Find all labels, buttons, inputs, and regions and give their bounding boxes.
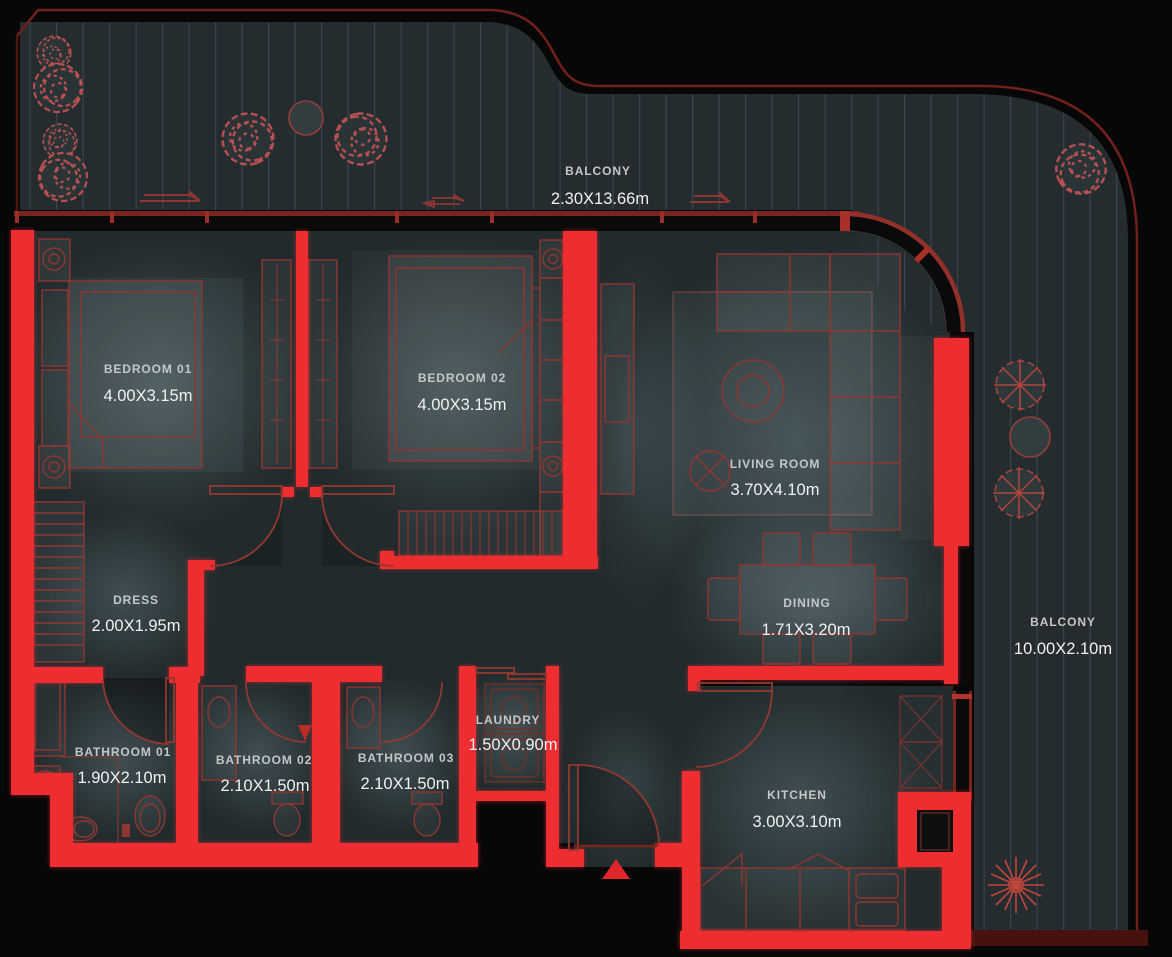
svg-text:BATHROOM 01: BATHROOM 01 bbox=[75, 745, 171, 759]
svg-text:DINING: DINING bbox=[783, 596, 830, 610]
svg-text:4.00X3.15m: 4.00X3.15m bbox=[104, 387, 193, 405]
svg-text:BEDROOM 01: BEDROOM 01 bbox=[104, 362, 192, 376]
svg-text:BEDROOM 02: BEDROOM 02 bbox=[418, 371, 506, 385]
svg-text:2.10X1.50m: 2.10X1.50m bbox=[361, 775, 450, 793]
svg-text:3.70X4.10m: 3.70X4.10m bbox=[731, 481, 820, 499]
svg-text:1.90X2.10m: 1.90X2.10m bbox=[78, 769, 167, 787]
svg-text:DRESS: DRESS bbox=[113, 593, 159, 607]
svg-text:BALCONY: BALCONY bbox=[565, 164, 631, 178]
svg-text:2.00X1.95m: 2.00X1.95m bbox=[92, 617, 181, 635]
svg-text:KITCHEN: KITCHEN bbox=[767, 788, 827, 802]
svg-text:BALCONY: BALCONY bbox=[1030, 615, 1096, 629]
svg-text:LAUNDRY: LAUNDRY bbox=[476, 713, 541, 727]
svg-text:2.10X1.50m: 2.10X1.50m bbox=[221, 777, 310, 795]
svg-text:3.00X3.10m: 3.00X3.10m bbox=[753, 813, 842, 831]
svg-text:1.71X3.20m: 1.71X3.20m bbox=[762, 621, 851, 639]
svg-text:BATHROOM 02: BATHROOM 02 bbox=[216, 753, 312, 767]
svg-text:LIVING ROOM: LIVING ROOM bbox=[730, 457, 821, 471]
svg-text:1.50X0.90m: 1.50X0.90m bbox=[469, 736, 558, 754]
svg-text:BATHROOM 03: BATHROOM 03 bbox=[358, 751, 454, 765]
svg-text:10.00X2.10m: 10.00X2.10m bbox=[1014, 640, 1112, 658]
svg-text:4.00X3.15m: 4.00X3.15m bbox=[418, 396, 507, 414]
svg-text:2.30X13.66m: 2.30X13.66m bbox=[551, 190, 649, 208]
